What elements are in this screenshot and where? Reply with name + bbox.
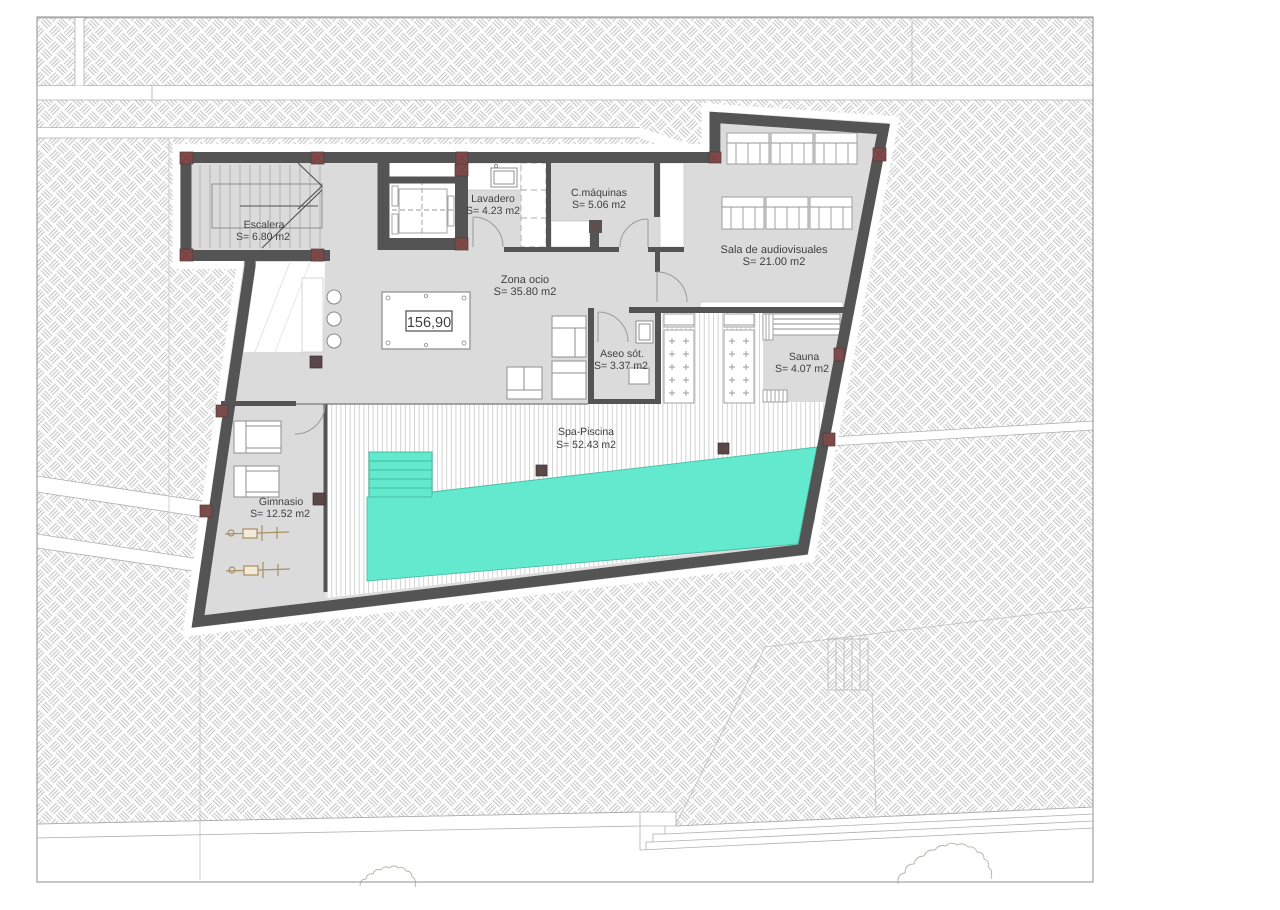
svg-text:C.máquinas: C.máquinas bbox=[571, 187, 627, 199]
svg-text:156,90: 156,90 bbox=[407, 315, 451, 331]
svg-text:Sala de audiovisuales: Sala de audiovisuales bbox=[720, 244, 828, 256]
svg-text:Aseo sót.: Aseo sót. bbox=[600, 348, 644, 360]
svg-text:S= 4.07 m2: S= 4.07 m2 bbox=[775, 363, 829, 375]
svg-text:Sauna: Sauna bbox=[789, 351, 820, 363]
svg-text:S= 5.06 m2: S= 5.06 m2 bbox=[572, 199, 626, 211]
svg-text:Lavadero: Lavadero bbox=[471, 193, 515, 205]
svg-text:Zona ocio: Zona ocio bbox=[501, 274, 549, 286]
svg-text:Escalera: Escalera bbox=[244, 219, 285, 231]
svg-text:S= 3.37 m2: S= 3.37 m2 bbox=[594, 360, 648, 372]
svg-text:S= 12.52 m2: S= 12.52 m2 bbox=[250, 508, 310, 520]
svg-text:Spa-Piscina: Spa-Piscina bbox=[558, 426, 614, 438]
svg-text:Gimnasio: Gimnasio bbox=[259, 496, 304, 508]
svg-text:S= 35.80 m2: S= 35.80 m2 bbox=[494, 286, 557, 298]
svg-text:S= 4.23 m2: S= 4.23 m2 bbox=[466, 205, 520, 217]
svg-text:S= 52.43 m2: S= 52.43 m2 bbox=[556, 439, 616, 451]
svg-text:S= 21.00 m2: S= 21.00 m2 bbox=[743, 256, 806, 268]
svg-text:S= 6.80 m2: S= 6.80 m2 bbox=[236, 231, 290, 243]
